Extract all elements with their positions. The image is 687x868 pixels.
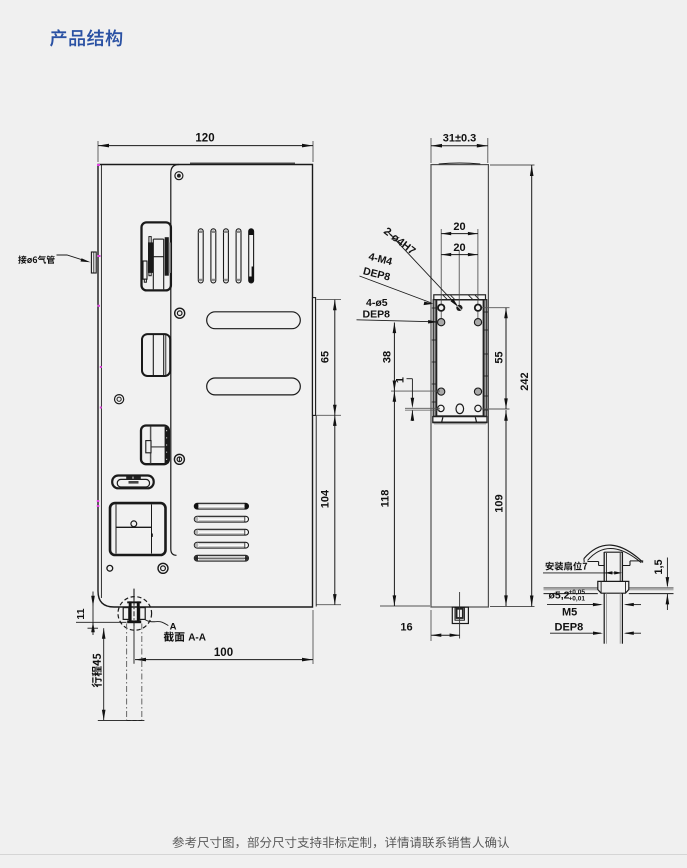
- svg-text:A-A: A-A: [188, 633, 206, 644]
- svg-text:31±0.3: 31±0.3: [443, 133, 477, 145]
- svg-text:4-ø5: 4-ø5: [366, 297, 388, 309]
- svg-text:ø5,2: ø5,2: [549, 590, 570, 602]
- svg-text:109: 109: [494, 494, 506, 512]
- svg-text:DEP8: DEP8: [363, 309, 391, 321]
- svg-text:M5: M5: [562, 607, 577, 619]
- svg-text:120: 120: [195, 133, 214, 145]
- svg-text:1: 1: [395, 377, 407, 383]
- svg-text:20: 20: [453, 242, 465, 254]
- svg-text:A: A: [170, 622, 177, 633]
- svg-text:1,5: 1,5: [653, 559, 665, 574]
- svg-text:55: 55: [494, 351, 506, 363]
- svg-text:16: 16: [400, 622, 412, 634]
- svg-text:11: 11: [75, 608, 87, 619]
- svg-text:100: 100: [214, 647, 233, 659]
- svg-text:20: 20: [453, 221, 465, 233]
- svg-text:DEP8: DEP8: [555, 622, 584, 634]
- svg-text:242: 242: [519, 372, 531, 390]
- svg-text:65: 65: [320, 351, 332, 363]
- svg-text:+0,01: +0,01: [569, 596, 586, 603]
- svg-text:104: 104: [320, 489, 332, 508]
- svg-text:118: 118: [380, 490, 392, 508]
- svg-text:38: 38: [382, 351, 394, 363]
